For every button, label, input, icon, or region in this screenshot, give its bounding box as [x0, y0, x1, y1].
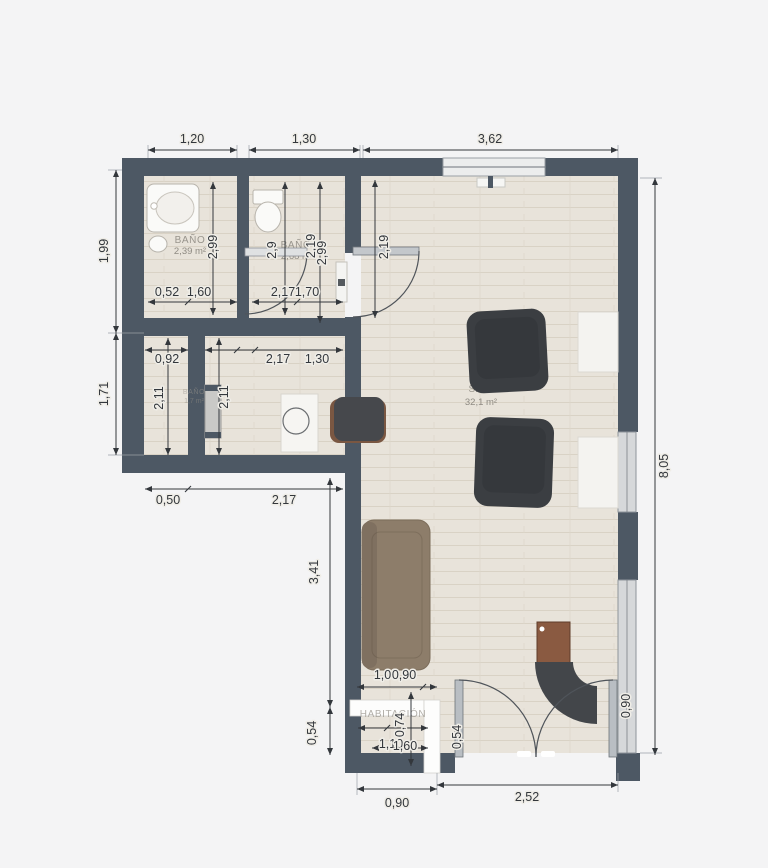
- dim-v-bath1: 2,99: [206, 235, 220, 259]
- dim-bed-w-2: 1,60: [393, 739, 417, 753]
- dim-top-3: 3,62: [478, 132, 502, 146]
- floor-plan-page: BAÑO 2,39 m² BAÑO 2,68 m² BAÑO 1,7 m² SA…: [0, 0, 768, 868]
- dim-bottom-1: 0,90: [385, 796, 409, 810]
- dim-leaf-h: 0,54: [450, 725, 464, 749]
- door-hinge-mark-2: [541, 751, 555, 757]
- dim-win-h: 0,90: [619, 694, 633, 718]
- wall-right-upper: [618, 158, 638, 432]
- dim-v-hall-2: 2,99: [315, 241, 329, 265]
- dim-v-closet-1: 2,11: [152, 386, 166, 409]
- side-table-2: [578, 437, 618, 508]
- wall-between-baths: [237, 176, 249, 318]
- bath1-sink: [149, 236, 167, 252]
- wall-top-left: [122, 158, 443, 176]
- wall-right-mid: [618, 512, 638, 580]
- dim-v-sofa: 3,41: [307, 560, 321, 584]
- dim-v-closet-2: 2,11: [217, 385, 231, 408]
- dim-in-top-4: 1,70: [295, 285, 319, 299]
- armchair-1-seat: [474, 316, 540, 379]
- salon-area: 32,1 m²: [465, 397, 497, 408]
- closet-name: BAÑO: [183, 387, 205, 396]
- dim-v-door: 2,19: [377, 235, 391, 259]
- side-table-1: [578, 312, 618, 372]
- bathtub-faucet: [151, 203, 157, 209]
- dim-left-1: 1,99: [97, 239, 111, 263]
- dim-in-top-2: 1,60: [187, 285, 211, 299]
- top-radiator-bracket: [488, 176, 493, 188]
- dim-top-1: 1,20: [180, 132, 204, 146]
- dim-in-low-1: 0,50: [156, 493, 180, 507]
- dim-v-bath2: 2,9: [265, 241, 279, 258]
- dim-top-2: 1,30: [292, 132, 316, 146]
- cabinet-knob: [540, 627, 545, 632]
- armchair-1: [466, 308, 549, 394]
- dim-in-top-3: 2,17: [271, 285, 295, 299]
- dim-right-1: 8,05: [657, 454, 671, 478]
- dim-left-2: 1,71: [97, 382, 111, 406]
- armchair-2: [473, 417, 554, 509]
- dim-in-mid-2: 2,17: [266, 352, 290, 366]
- dim-in-top-1: 0,52: [155, 285, 179, 299]
- hall-desk: [281, 394, 318, 452]
- bathtub-basin: [156, 192, 194, 224]
- wall-bottom: [361, 753, 455, 773]
- bath1-area: 2,39 m²: [174, 246, 206, 257]
- dim-in-mid-1: 0,92: [155, 352, 179, 366]
- dim-in-mid-3: 1,30: [305, 352, 329, 366]
- double-door-right-leaf: [609, 680, 617, 757]
- wall-main-left-upper: [345, 176, 361, 253]
- dim-sofa-w-2: 0,90: [392, 668, 416, 682]
- closet-area: 1,7 m²: [184, 398, 205, 405]
- door-hinge-mark-1: [517, 751, 531, 757]
- dim-bottom-2: 2,52: [515, 790, 539, 804]
- toilet-bowl: [255, 202, 281, 232]
- floor-plan-svg: BAÑO 2,39 m² BAÑO 2,68 m² BAÑO 1,7 m² SA…: [0, 0, 768, 868]
- wall-right-corner: [616, 753, 640, 781]
- dim-v-door-low: 0,54: [305, 721, 319, 745]
- dim-in-low-2: 2,17: [272, 493, 296, 507]
- wall-hall-bottom: [122, 455, 345, 473]
- dim-bed-h: 0,74: [393, 713, 407, 737]
- top-radiator-right: [492, 178, 505, 187]
- wall-bath-bottom: [122, 318, 361, 336]
- sofa-back: [362, 522, 377, 668]
- bath1-name: BAÑO: [175, 233, 206, 246]
- armchair-2-seat: [482, 425, 546, 494]
- bath2-radiator-valve: [338, 279, 345, 286]
- side-chair: [334, 397, 384, 441]
- white-wall-right: [424, 700, 440, 773]
